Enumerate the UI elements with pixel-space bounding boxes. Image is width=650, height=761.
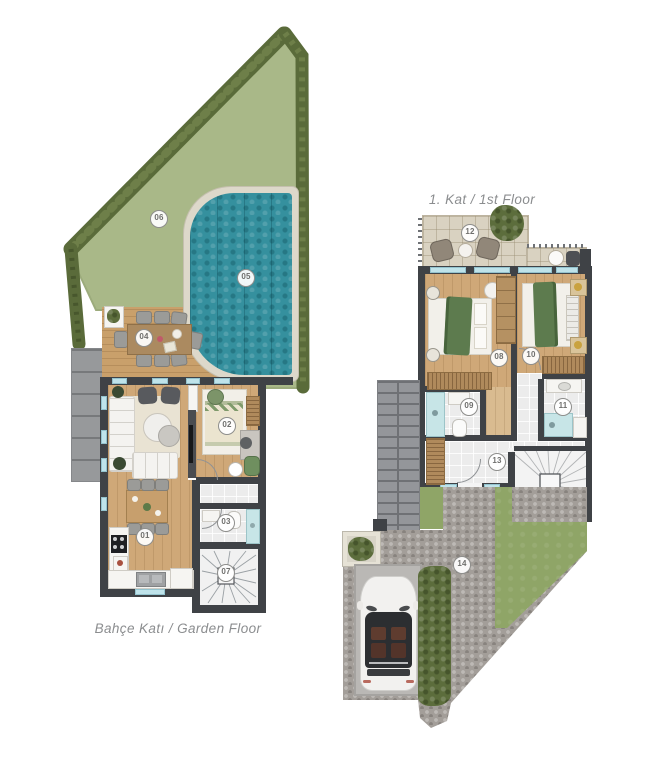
cooktop bbox=[111, 535, 127, 553]
wardrobe bbox=[542, 356, 585, 374]
window bbox=[152, 378, 168, 384]
window bbox=[101, 497, 107, 511]
room-marker-06: 06 bbox=[150, 210, 168, 228]
car-taillight bbox=[363, 680, 371, 683]
driveway-hedge bbox=[418, 566, 451, 706]
terrace-railing-top bbox=[527, 244, 585, 248]
dining-chair bbox=[155, 479, 169, 491]
window bbox=[186, 378, 200, 384]
plate bbox=[172, 329, 182, 339]
table-plant bbox=[143, 503, 151, 511]
wardrobe bbox=[246, 396, 260, 426]
car-seat bbox=[391, 627, 406, 640]
deck-chair bbox=[136, 311, 152, 324]
pot bbox=[117, 560, 123, 566]
terrace-railing-left bbox=[418, 217, 422, 268]
bed bbox=[522, 283, 572, 347]
plant-pot bbox=[112, 386, 124, 398]
headboard bbox=[566, 295, 579, 341]
kitchen-table bbox=[126, 490, 168, 523]
car-cabin bbox=[365, 612, 412, 668]
plate bbox=[132, 496, 138, 502]
shower-head bbox=[432, 410, 438, 416]
room-marker-07: 07 bbox=[217, 564, 235, 582]
room-marker-03: 03 bbox=[217, 514, 235, 532]
yard-wall-stub bbox=[373, 519, 387, 531]
window bbox=[214, 378, 230, 384]
room-marker-14: 14 bbox=[453, 556, 471, 574]
coffee-table-small bbox=[158, 425, 180, 447]
bed-pillow bbox=[207, 389, 224, 405]
bed-pillow bbox=[474, 303, 487, 325]
window bbox=[135, 589, 165, 595]
room-marker-01: 01 bbox=[136, 528, 154, 546]
terrace-plant bbox=[490, 205, 524, 241]
exterior-stairs bbox=[377, 380, 420, 532]
first-floor-label: 1. Kat / 1st Floor bbox=[392, 192, 572, 207]
deck-chair bbox=[154, 311, 170, 324]
room-marker-10: 10 bbox=[522, 347, 540, 365]
first-floor-plan: 1. Kat / 1st Floor bbox=[330, 0, 650, 761]
window bbox=[101, 430, 107, 444]
tv-wall bbox=[188, 410, 196, 478]
room-marker-04: 04 bbox=[135, 329, 153, 347]
room-marker-08: 08 bbox=[490, 349, 508, 367]
terrace-table bbox=[548, 250, 564, 266]
napkin bbox=[163, 341, 177, 353]
planter-bush bbox=[348, 537, 374, 561]
sofa-section bbox=[132, 452, 178, 479]
side-table bbox=[228, 462, 243, 477]
car-mirror bbox=[357, 601, 363, 610]
bath-door bbox=[573, 417, 587, 438]
room-marker-13: 13 bbox=[488, 453, 506, 471]
fridge bbox=[170, 568, 193, 589]
window bbox=[101, 458, 107, 472]
room-marker-02: 02 bbox=[218, 417, 236, 435]
window bbox=[556, 267, 578, 273]
deck-planter bbox=[104, 306, 124, 328]
deck-chair bbox=[114, 331, 128, 348]
shower bbox=[246, 509, 260, 544]
dining-chair bbox=[141, 479, 155, 491]
car-seat bbox=[371, 627, 386, 640]
bath-counter bbox=[546, 379, 582, 393]
desk-chair bbox=[240, 437, 252, 449]
armchair bbox=[137, 386, 157, 404]
room-marker-12: 12 bbox=[461, 224, 479, 242]
car bbox=[360, 576, 417, 691]
room-marker-11: 11 bbox=[554, 398, 572, 416]
tv-cabinet bbox=[188, 385, 198, 412]
window bbox=[430, 267, 466, 273]
window bbox=[101, 396, 107, 410]
nightstand-lamp bbox=[426, 286, 440, 300]
tv-screen bbox=[189, 425, 193, 463]
toilet bbox=[452, 419, 467, 437]
tall-wardrobe bbox=[496, 276, 516, 344]
armchair bbox=[160, 386, 180, 405]
window bbox=[518, 267, 552, 273]
hallway-floor bbox=[200, 484, 258, 503]
shower bbox=[426, 392, 445, 437]
floor-plan-page: { "plans": { "garden": { "label": "Bahçe… bbox=[0, 0, 650, 761]
garden-floor-plan: 01 02 03 04 05 06 07 Bahçe Katı / Garden… bbox=[0, 0, 330, 660]
car-rear-window bbox=[367, 669, 410, 676]
car-taillight bbox=[406, 680, 414, 683]
planter-bush bbox=[107, 309, 120, 323]
wall-right-bath09 bbox=[480, 390, 486, 441]
bed-blanket bbox=[533, 282, 558, 348]
yard-grass-small bbox=[420, 487, 443, 529]
stairwell-top-wall bbox=[514, 446, 592, 451]
bed bbox=[428, 298, 492, 355]
room-marker-09: 09 bbox=[460, 398, 478, 416]
deck-chair bbox=[136, 354, 152, 367]
wardrobe bbox=[427, 372, 492, 390]
window bbox=[112, 378, 127, 384]
window bbox=[474, 267, 510, 273]
bed-blanket bbox=[444, 296, 473, 355]
nightstand bbox=[570, 337, 587, 354]
nightstand-lamp bbox=[426, 348, 440, 362]
dining-chair bbox=[127, 479, 141, 491]
house-left-wall bbox=[100, 377, 108, 597]
stair-bottom-wall bbox=[196, 605, 266, 613]
kitchen-cart bbox=[113, 556, 128, 571]
shower bbox=[544, 413, 573, 437]
car-seat bbox=[391, 643, 406, 658]
kitchen-sink bbox=[136, 572, 166, 587]
terrace-side-table bbox=[458, 243, 473, 258]
bed-pillow bbox=[474, 327, 487, 349]
chaise bbox=[244, 456, 260, 476]
room-marker-05: 05 bbox=[237, 269, 255, 287]
plant-pot bbox=[113, 457, 126, 470]
nightstand bbox=[570, 279, 587, 296]
shower-head bbox=[549, 422, 555, 428]
terrace-chair bbox=[566, 251, 580, 266]
plate bbox=[155, 510, 161, 516]
deck-chair bbox=[154, 354, 170, 367]
garden-floor-label: Bahçe Katı / Garden Floor bbox=[58, 621, 298, 636]
dining-chair bbox=[155, 523, 169, 535]
shower-drain bbox=[250, 523, 255, 528]
hall-shelf bbox=[426, 438, 445, 485]
bowl bbox=[157, 336, 163, 342]
car-seat bbox=[371, 643, 386, 658]
front-planter bbox=[343, 532, 380, 566]
